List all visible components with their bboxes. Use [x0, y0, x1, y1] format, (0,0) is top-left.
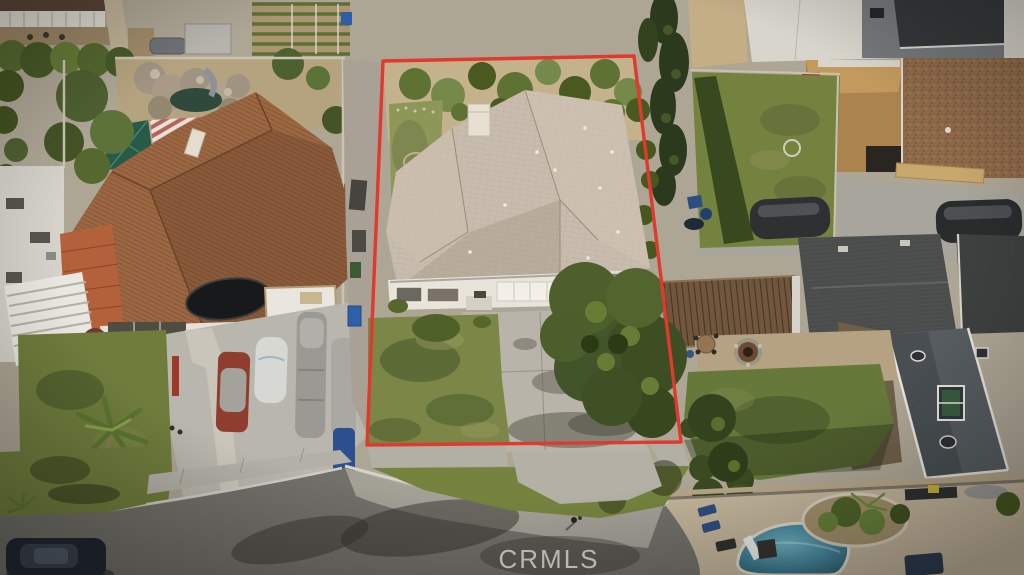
- aerial-photo: CRMLS: [0, 0, 1024, 575]
- photo-vignette: [0, 0, 1024, 575]
- crmls-watermark: CRMLS: [498, 544, 599, 574]
- aerial-photo-canvas: CRMLS: [0, 0, 1024, 575]
